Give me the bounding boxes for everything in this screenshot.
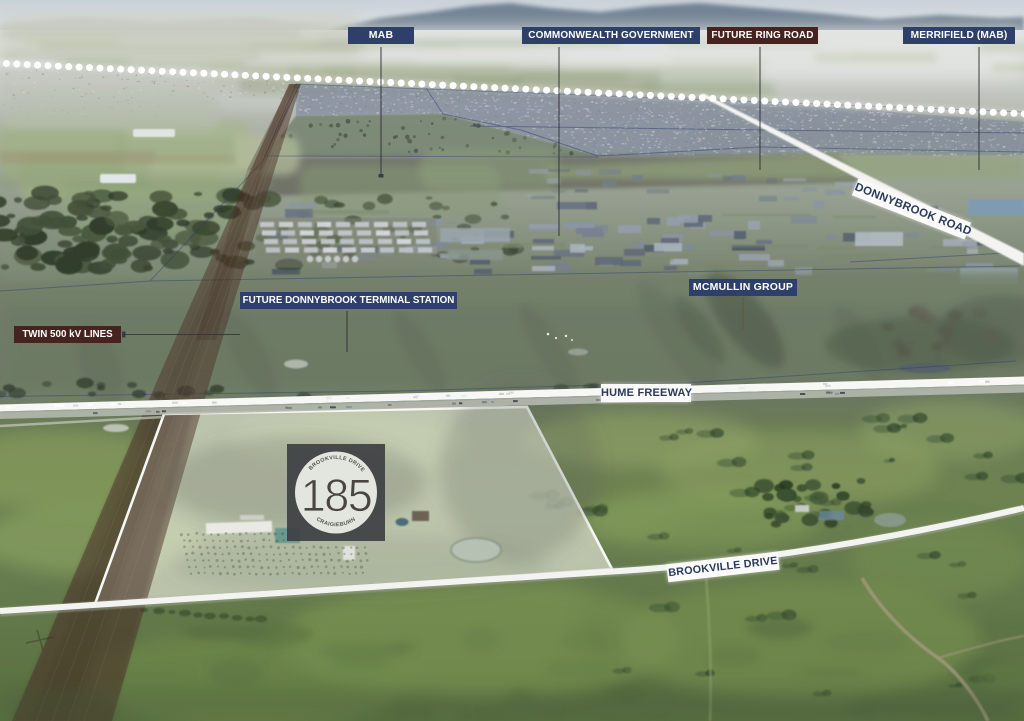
svg-text:185: 185 <box>301 470 372 521</box>
